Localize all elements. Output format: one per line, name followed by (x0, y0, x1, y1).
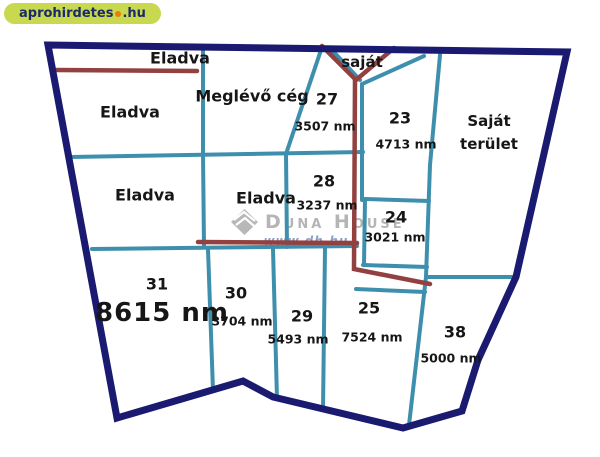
parcel-31-number: 31 (146, 275, 168, 294)
orange-dot-icon (115, 11, 121, 17)
badge-site-name: aprohirdetes (19, 6, 113, 21)
parcel-eladva-mid-left-label: Eladva (115, 186, 175, 205)
sajat-terulet-line1: Saját (460, 110, 518, 133)
parcel-eladva-mid-label: Eladva (236, 189, 296, 208)
parcel-24-number: 24 (385, 208, 407, 227)
parcel-28-area: 3237 nm (296, 198, 357, 213)
parcel-sajat-label: saját (341, 53, 382, 71)
listing-image: Duna House www.dh.hu (0, 0, 600, 457)
parcel-30-area: 3704 nm (211, 314, 272, 329)
parcel-30-number: 30 (225, 284, 247, 303)
parcel-eladva-upper-left-label: Eladva (100, 103, 160, 122)
parcel-map (0, 0, 600, 457)
parcel-meglevo-ceg-label: Meglévő cég (195, 87, 308, 106)
parcel-38-area: 5000 nm (420, 351, 481, 366)
parcel-25-number: 25 (358, 299, 380, 318)
sajat-terulet-line2: terület (460, 133, 518, 156)
parcel-31-area: 8615 nm (95, 298, 229, 328)
parcel-27-area: 3507 nm (294, 119, 355, 134)
parcel-25-area: 7524 nm (341, 330, 402, 345)
parcel-eladva-strip-label: Eladva (150, 49, 210, 68)
parcel-24-area: 3021 nm (364, 230, 425, 245)
parcel-28-number: 28 (313, 172, 335, 191)
parcel-27-number: 27 (316, 90, 338, 109)
aprohirdetes-logo-badge: aprohirdetes .hu (4, 3, 161, 24)
parcel-23-area: 4713 nm (375, 137, 436, 152)
parcel-29-area: 5493 nm (267, 332, 328, 347)
parcel-29-number: 29 (291, 307, 313, 326)
parcel-23-number: 23 (389, 109, 411, 128)
badge-site-tld: .hu (122, 6, 145, 21)
parcel-38-number: 38 (444, 323, 466, 342)
parcel-sajat-terulet-label: Saját terület (460, 110, 518, 156)
